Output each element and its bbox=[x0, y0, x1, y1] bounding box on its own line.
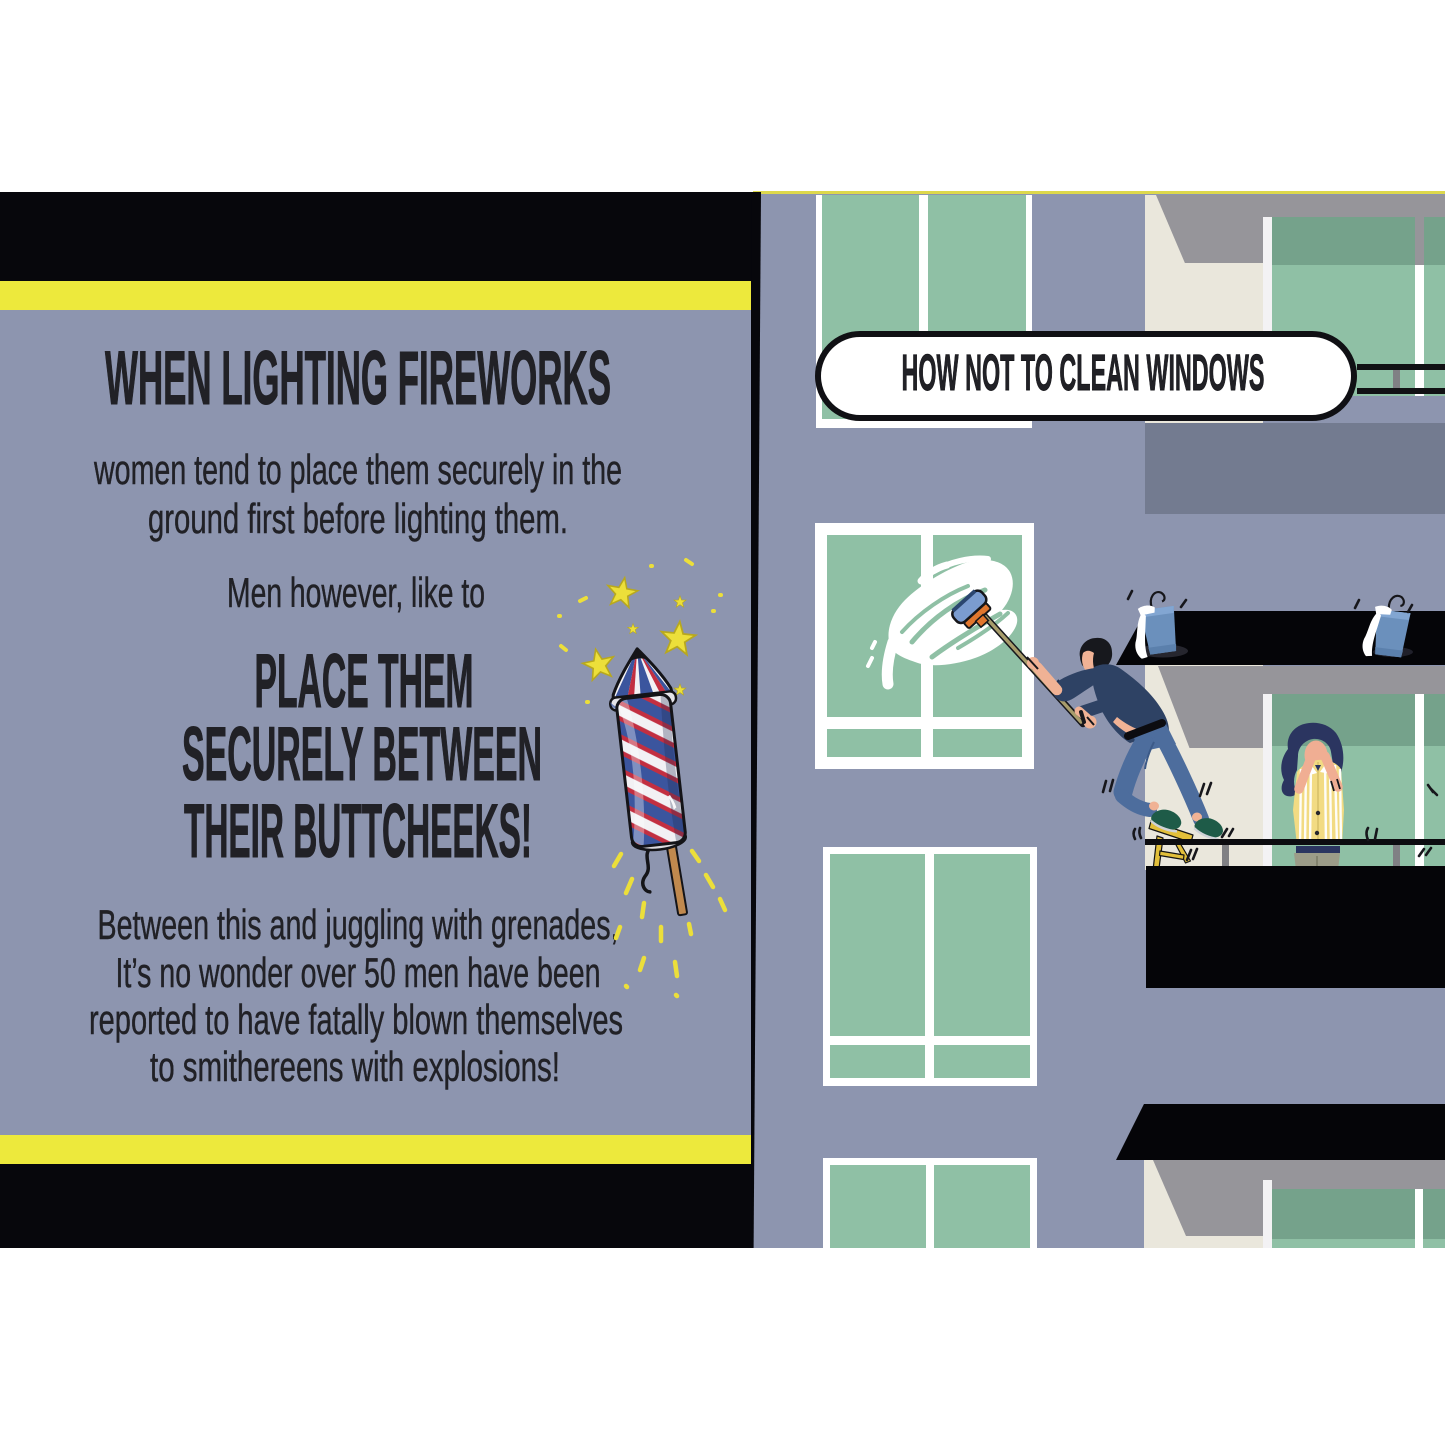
svg-text:to smithereens with explosions: to smithereens with explosions! bbox=[150, 1043, 560, 1090]
svg-text:WHEN LIGHTING FIREWORKS: WHEN LIGHTING FIREWORKS bbox=[105, 336, 611, 421]
svg-text:HOW NOT TO CLEAN WINDOWS: HOW NOT TO CLEAN WINDOWS bbox=[902, 344, 1265, 401]
svg-text:reported to have fatally blown: reported to have fatally blown themselve… bbox=[89, 996, 623, 1043]
svg-text:women tend to place them secur: women tend to place them securely in the bbox=[93, 446, 622, 493]
svg-text:ground first before lighting t: ground first before lighting them. bbox=[148, 495, 568, 542]
svg-text:Men however, like to: Men however, like to bbox=[227, 569, 485, 616]
svg-text:SECURELY BETWEEN: SECURELY BETWEEN bbox=[182, 712, 542, 797]
svg-text:THEIR BUTTCHEEKS!: THEIR BUTTCHEEKS! bbox=[184, 789, 532, 874]
svg-text:It’s no wonder over 50 men hav: It’s no wonder over 50 men have been bbox=[116, 949, 601, 996]
svg-text:Between this and juggling with: Between this and juggling with grenades, bbox=[98, 901, 619, 948]
